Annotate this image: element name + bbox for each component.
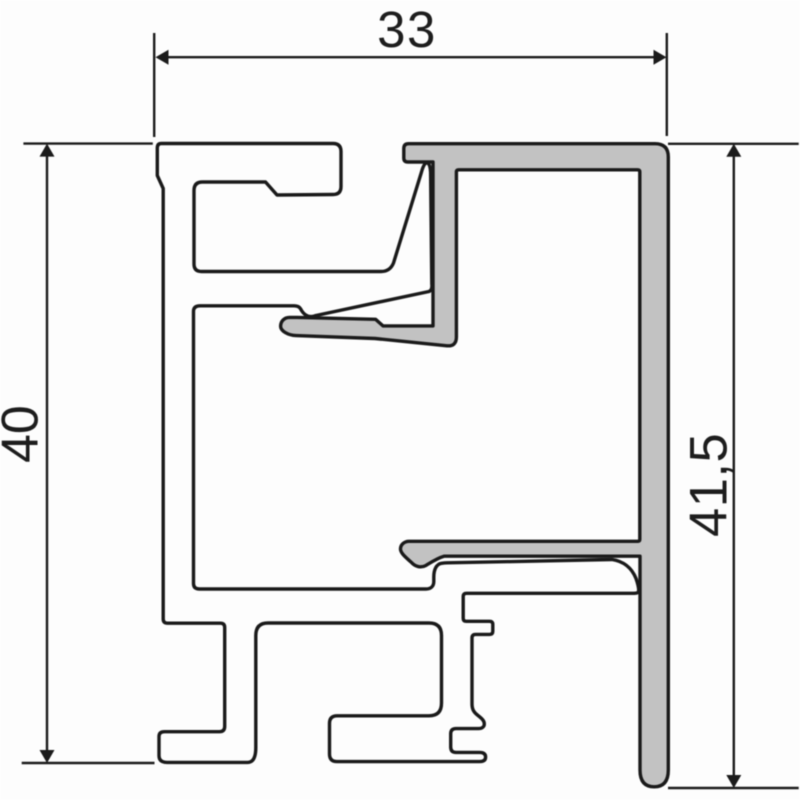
- svg-text:33: 33: [377, 1, 437, 58]
- svg-text:40: 40: [0, 405, 50, 463]
- svg-text:41,5: 41,5: [680, 433, 739, 537]
